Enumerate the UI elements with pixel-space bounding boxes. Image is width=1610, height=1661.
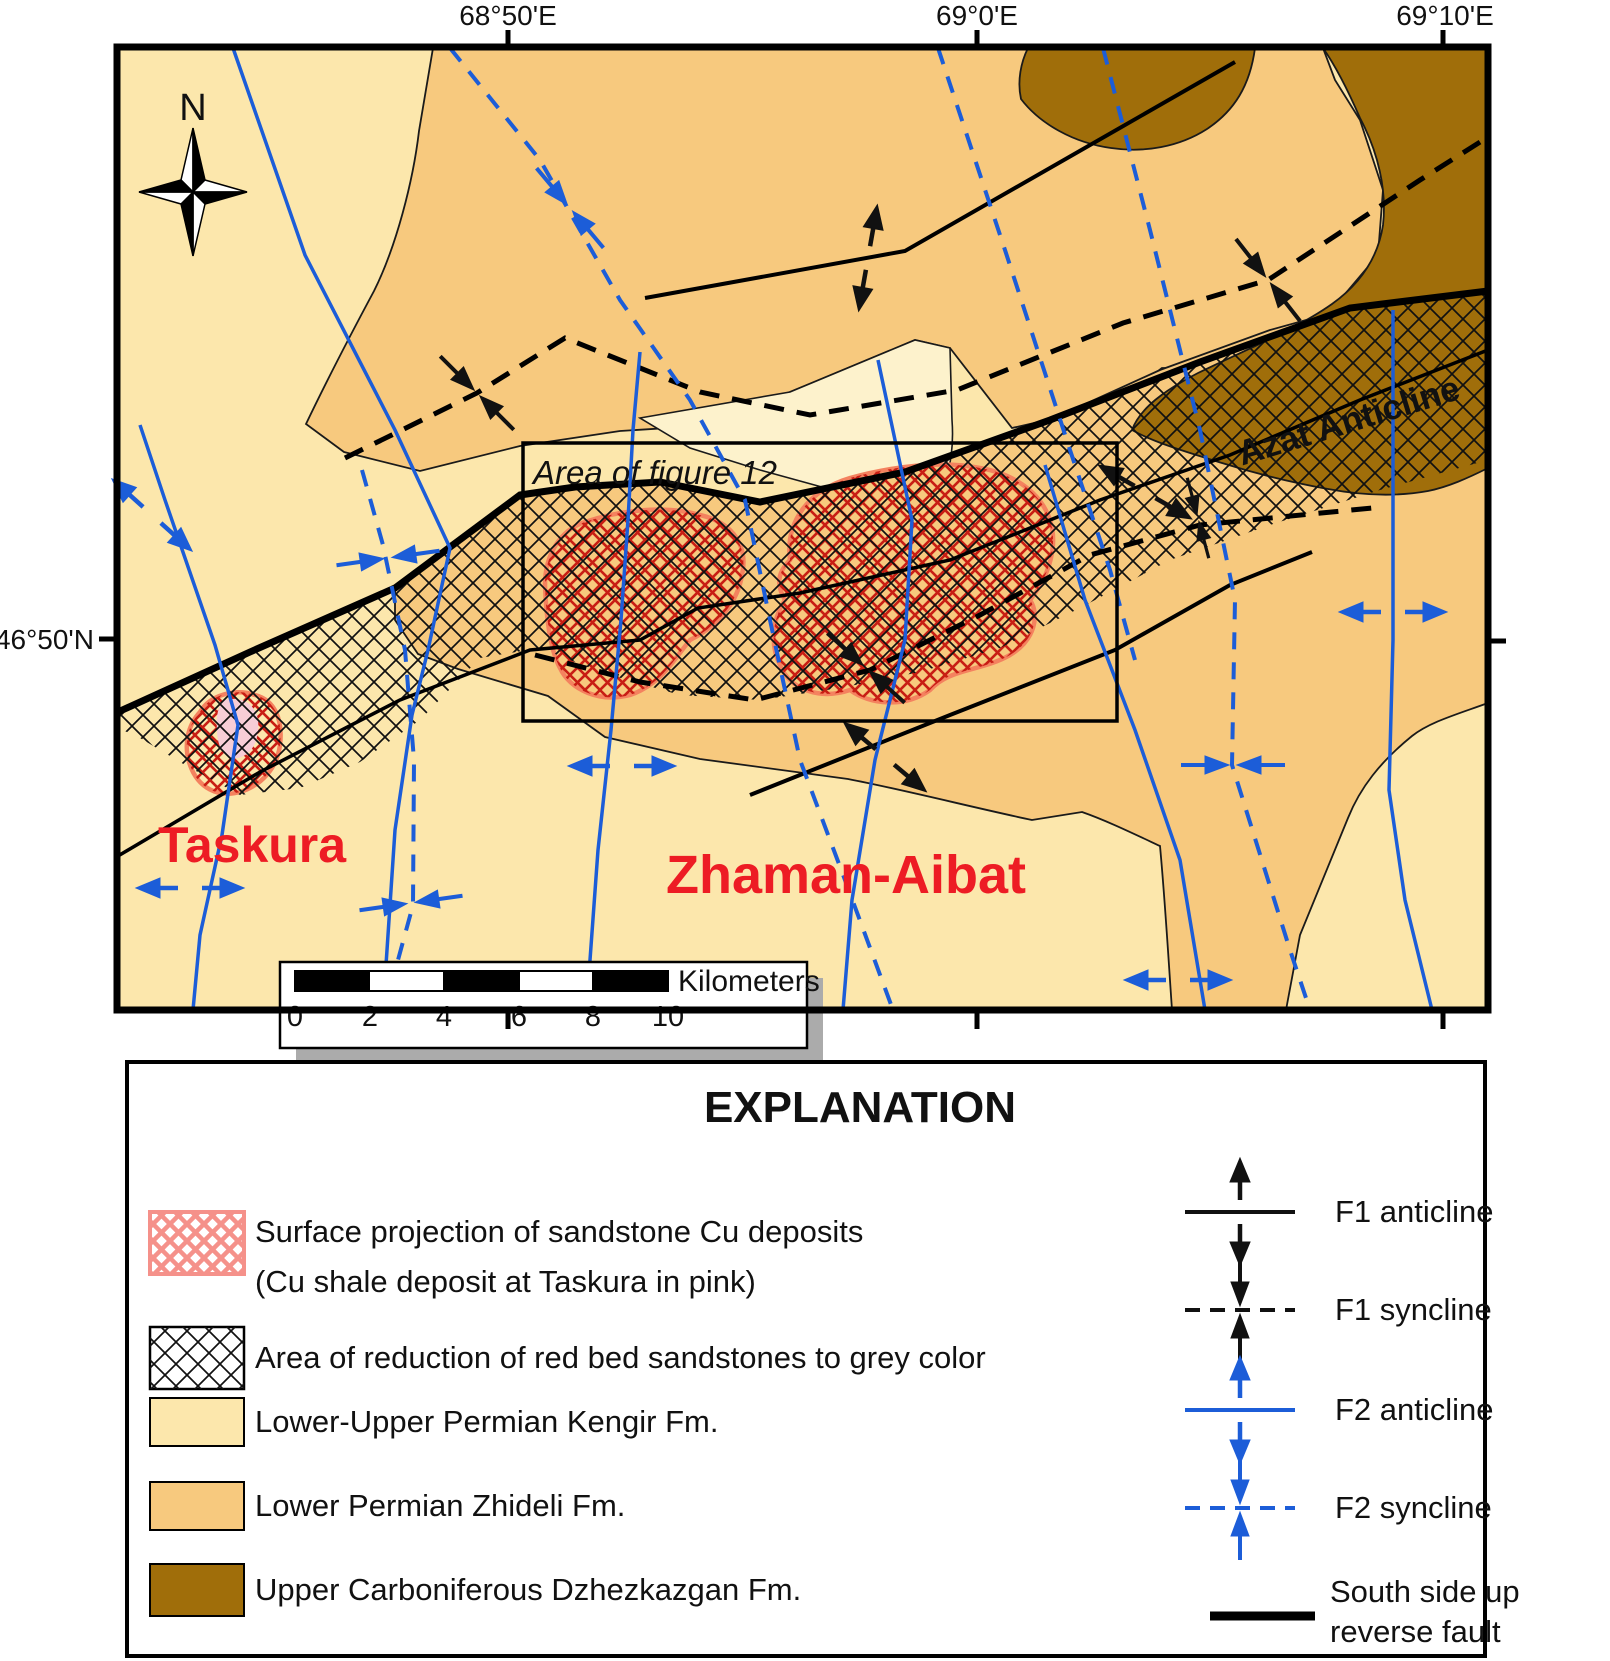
kengir-swatch [150, 1398, 244, 1446]
cu-deposit-label-line1: Surface projection of sandstone Cu depos… [255, 1214, 863, 1249]
f1-anticline-label: F1 anticline [1335, 1194, 1494, 1229]
scale-tick-2: 2 [362, 1001, 378, 1033]
coord-left-1: 46°50'N [0, 624, 94, 655]
scale-tick-4: 4 [436, 1001, 452, 1033]
legend-item-zhideli: Lower Permian Zhideli Fm. [150, 1482, 625, 1530]
legend-box: EXPLANATION Surface projection of sandst… [127, 1062, 1520, 1656]
scale-bar-segments [295, 971, 668, 991]
f2-syncline-label: F2 syncline [1335, 1490, 1492, 1525]
coord-top-1: 68°50'E [459, 0, 557, 31]
zhideli-swatch [150, 1482, 244, 1530]
kengir-label: Lower-Upper Permian Kengir Fm. [255, 1404, 718, 1439]
north-label: N [179, 87, 206, 129]
f2-anticline-label: F2 anticline [1335, 1392, 1494, 1427]
coord-top-3: 69°10'E [1396, 0, 1494, 31]
dzhezkazgan-label: Upper Carboniferous Dzhezkazgan Fm. [255, 1572, 801, 1607]
scale-tick-0: 0 [287, 1001, 303, 1033]
legend-title: EXPLANATION [704, 1083, 1016, 1132]
legend-item-kengir: Lower-Upper Permian Kengir Fm. [150, 1398, 718, 1446]
cu-deposit-swatch-hatch [150, 1212, 244, 1274]
reverse-fault-label-line2: reverse fault [1330, 1614, 1501, 1649]
cu-deposit-label-line2: (Cu shale deposit at Taskura in pink) [255, 1264, 756, 1299]
zhideli-label: Lower Permian Zhideli Fm. [255, 1488, 625, 1523]
map-area: Area of figure 12 Taskura Zhaman-Aibat A… [0, 0, 1506, 1066]
taskura-label: Taskura [158, 817, 347, 873]
figure-area-label: Area of figure 12 [531, 454, 777, 491]
dzhezkazgan-swatch [150, 1564, 244, 1616]
zhaman-aibat-label: Zhaman-Aibat [666, 845, 1026, 905]
scale-tick-10: 10 [652, 1001, 684, 1033]
coord-top-2: 69°0'E [936, 0, 1018, 31]
map-canvas: Area of figure 12 Taskura Zhaman-Aibat A… [0, 0, 1610, 1661]
reverse-fault-label-line1: South side up [1330, 1574, 1520, 1609]
reduction-swatch-hatch [150, 1327, 244, 1389]
scale-tick-6: 6 [511, 1001, 527, 1033]
geologic-map-figure: Area of figure 12 Taskura Zhaman-Aibat A… [0, 0, 1610, 1661]
scale-unit-label: Kilometers [678, 965, 820, 998]
scale-tick-8: 8 [585, 1001, 601, 1033]
f1-syncline-label: F1 syncline [1335, 1292, 1492, 1327]
reduction-label: Area of reduction of red bed sandstones … [255, 1340, 986, 1375]
scale-bar: 0 2 4 6 8 10 Kilometers [280, 962, 823, 1066]
